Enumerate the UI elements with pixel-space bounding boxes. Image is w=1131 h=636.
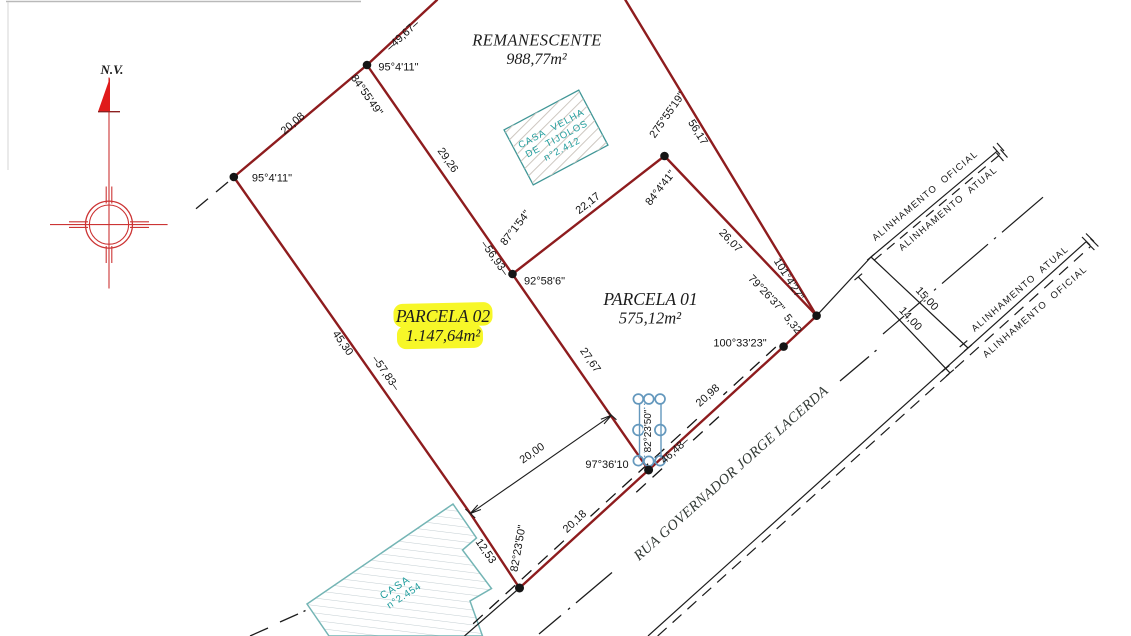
svg-text:95°4'11": 95°4'11": [378, 62, 418, 74]
svg-text:PARCELA 02: PARCELA 02: [395, 306, 490, 326]
svg-text:82°23'50": 82°23'50": [509, 524, 529, 573]
svg-text:REMANESCENTE: REMANESCENTE: [471, 31, 601, 50]
svg-text:PARCELA 01: PARCELA 01: [602, 289, 697, 309]
svg-text:N.V.: N.V.: [100, 62, 124, 77]
svg-text:84°55'49": 84°55'49": [348, 73, 385, 119]
svg-text:–57,83–: –57,83–: [369, 354, 402, 394]
svg-text:575,12m²: 575,12m²: [619, 309, 682, 328]
svg-text:87°1'54": 87°1'54": [498, 208, 533, 248]
svg-text:92°58'6": 92°58'6": [524, 276, 565, 288]
svg-text:–49,67–: –49,67–: [384, 17, 422, 53]
svg-text:100°33'23": 100°33'23": [713, 338, 766, 350]
svg-text:84°4'41": 84°4'41": [643, 168, 678, 208]
svg-text:20,00: 20,00: [518, 441, 547, 467]
svg-text:1.147,64m²: 1.147,64m²: [406, 326, 482, 345]
svg-text:22,17: 22,17: [574, 190, 603, 216]
svg-text:27,67: 27,67: [577, 346, 603, 375]
svg-text:5,32: 5,32: [781, 312, 804, 336]
svg-text:82°23'50": 82°23'50": [643, 409, 654, 452]
svg-text:97°36'10: 97°36'10: [585, 459, 628, 471]
svg-text:95°4'11": 95°4'11": [252, 173, 292, 185]
svg-text:26,07: 26,07: [716, 227, 744, 255]
svg-text:29,26: 29,26: [435, 146, 461, 175]
svg-text:988,77m²: 988,77m²: [506, 51, 568, 68]
svg-text:275°55'19": 275°55'19": [647, 90, 687, 141]
svg-text:20,08: 20,08: [279, 110, 308, 137]
svg-text:20,18: 20,18: [561, 508, 589, 536]
